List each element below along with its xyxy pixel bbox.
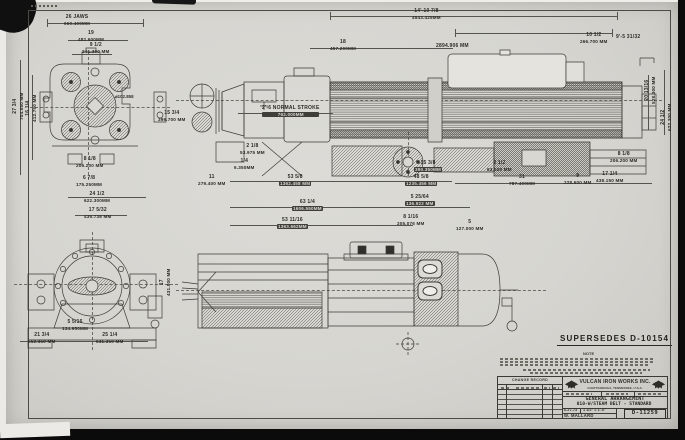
- drawing-number: D-11259: [632, 411, 658, 417]
- dim-412-vertical: 16 1/4412.750 MM: [26, 94, 37, 122]
- drawing-number-box: D-11259: [624, 409, 666, 419]
- title-block: CHANGE RECORD VULCAN IRON WORKS INC. CHA…: [497, 376, 668, 419]
- dim-127: 5127.000 MM: [456, 220, 484, 231]
- dim-435: 17 5/32435.738 MM: [84, 208, 112, 219]
- microfilm-mark: [31, 5, 57, 7]
- note-label: NOTE: [583, 352, 594, 356]
- dim-136922: 5 25/64136.922 MM: [405, 195, 435, 206]
- dim-53975: 2 1/853.975 MM: [240, 144, 265, 155]
- dim-overall: 14'-10 7/84543.425MM: [412, 9, 441, 20]
- end-view-top-left: [38, 50, 168, 172]
- dim-390: 15 3/8390.350MM: [414, 161, 442, 172]
- dim-134: 5 5/16134.950MM: [62, 320, 88, 331]
- dim-431-vertical: 17431.800 MM: [160, 268, 171, 296]
- dim-279: 11279.400 MM: [198, 175, 226, 186]
- company-location: CHATTANOOGA, TENNESSEE, U.S.A.: [564, 387, 666, 390]
- company-name: VULCAN IRON WORKS INC.: [564, 380, 666, 386]
- dim-206b: 8 1/8206.200 MM: [610, 152, 638, 163]
- dim-175: 6 7/8175.250MM: [76, 176, 102, 187]
- dim-2894-mm: 2894.906 MM: [436, 34, 469, 52]
- supersedes-note: SUPERSEDES D-10154: [557, 334, 672, 346]
- dim-641: 25 1/4641.350 MM: [96, 333, 124, 344]
- dim-6350: 1/46.350MM: [234, 159, 255, 170]
- dim-438: 17 1/4438.150 MM: [596, 172, 624, 183]
- scan-edge-bottom: [0, 429, 685, 440]
- dim-528-vertical: 20 13/16528.300 MM: [645, 76, 656, 104]
- change-record-label: CHANGE RECORD: [498, 379, 562, 383]
- dim-204: 8 1/16205.076 MM: [397, 215, 425, 226]
- dim-787: 31787.400MM: [509, 175, 535, 186]
- scan-edge-right: [678, 0, 685, 440]
- dim-1363: 53 11/161363.662MM: [277, 218, 308, 229]
- dim-622: 24 1/2622.300MM: [84, 192, 110, 203]
- scan-corner-bottom-left: [0, 422, 70, 438]
- dim-241: 9 1/2241.300 MM: [82, 43, 110, 54]
- dim-266: 10 1/2266.700 MM: [580, 33, 608, 44]
- dim-2894-in: 9'-5 31/32: [616, 25, 640, 43]
- blueprint-scan: 26 JAWS660.400MM 19482.600MM 9 1/2241.30…: [0, 0, 685, 440]
- dim-206: 8 1/8206.200 MM: [76, 157, 104, 168]
- dim-63500: 2 1/263.500 MM: [487, 161, 512, 172]
- dim-399: 15 3/4399.700 MM: [158, 111, 186, 122]
- dim-1235: 48 5/81235.456 MM: [405, 175, 437, 186]
- bore-label: ⌀102.858: [115, 95, 134, 100]
- dim-1362: 53 5/81362.458 MM: [279, 175, 311, 186]
- dim-jaws: 26 JAWS660.400MM: [64, 15, 90, 26]
- dim-622-vertical: 24 1/2622.300 MM: [661, 103, 672, 131]
- dim-457: 18457.200MM: [330, 40, 356, 51]
- dim-552: 21 3/4552.450 MM: [28, 333, 56, 344]
- dim-228: 9228.600 MM: [564, 174, 592, 185]
- dim-482: 19482.600MM: [78, 31, 104, 42]
- drawn-by: W. MALLARD: [564, 414, 594, 418]
- dim-704-vertical: 27 3/4704.850 MM: [13, 92, 24, 120]
- dim-normal-stroke: 2'-6 NORMAL STROKE762.000MM: [262, 106, 319, 117]
- dim-1606: 63 1/41606.550MM: [292, 200, 323, 211]
- plan-view: [182, 240, 532, 358]
